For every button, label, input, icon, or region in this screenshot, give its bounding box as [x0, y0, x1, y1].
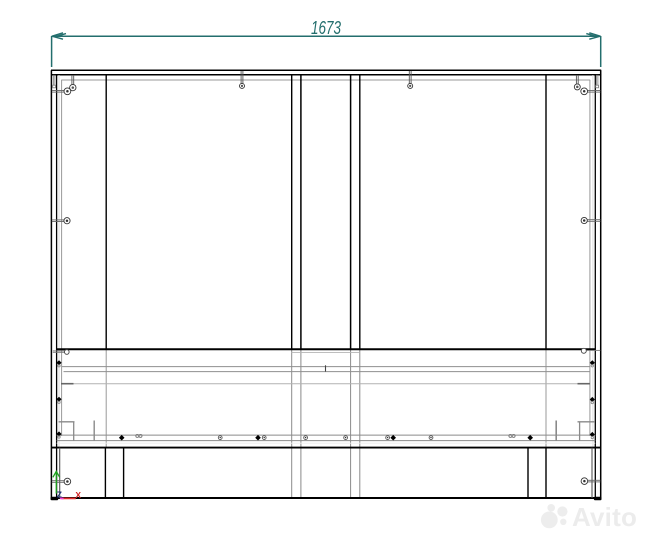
svg-text:1673: 1673 — [311, 18, 341, 39]
svg-text:X: X — [75, 490, 81, 500]
svg-text:Avito: Avito — [572, 502, 637, 532]
svg-text:Z: Z — [57, 490, 62, 500]
